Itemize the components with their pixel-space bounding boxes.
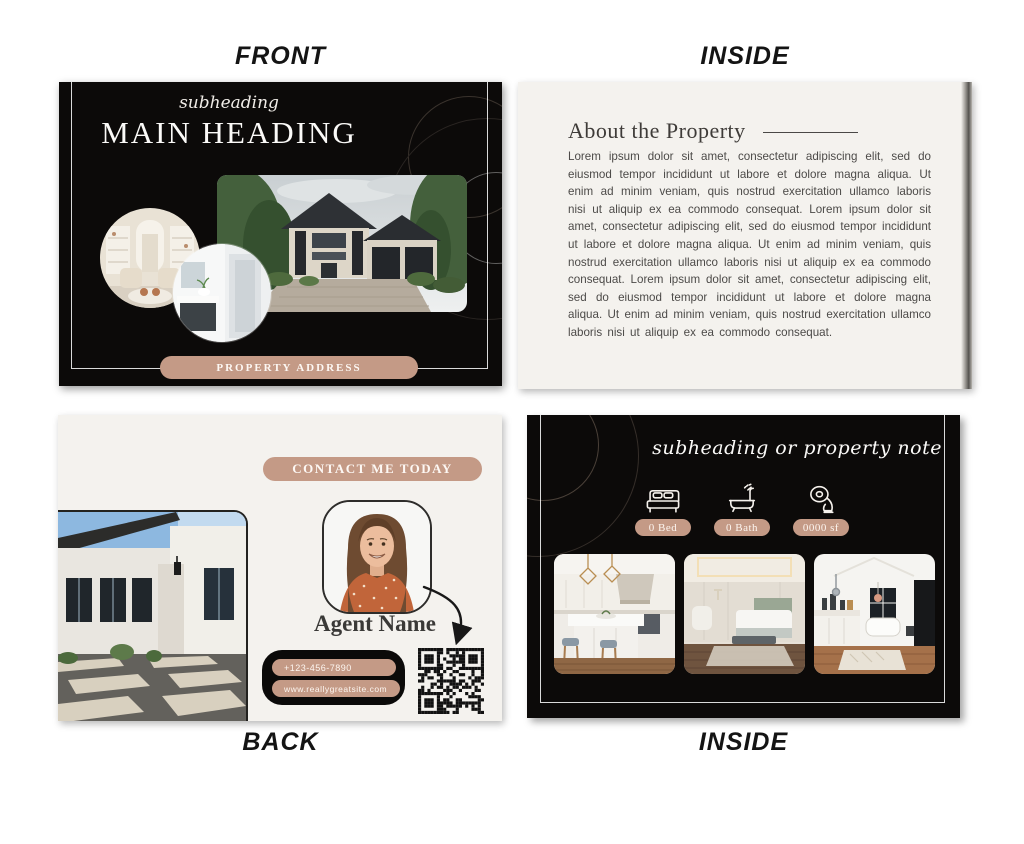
bed-count-pill: 0 Bed	[635, 519, 691, 536]
sqft-pill: 0000 sf	[793, 519, 849, 536]
inside-top-label: INSIDE	[518, 42, 972, 71]
phone-pill: +123-456-7890	[272, 659, 396, 676]
tape-measure-icon	[805, 485, 837, 515]
stat-bed: 0 Bed	[627, 485, 699, 536]
decorative-circle	[527, 415, 639, 557]
property-address-pill: PROPERTY ADDRESS	[160, 356, 418, 379]
front-card: subheading MAIN HEADING	[59, 82, 502, 386]
flyer-mockup-page: FRONT INSIDE BACK INSIDE subheading MAIN…	[0, 0, 1024, 844]
inside-gallery-card: subheading or property note 0 Bed	[527, 415, 960, 718]
front-main-heading: MAIN HEADING	[69, 115, 389, 151]
property-note-subheading: subheading or property note	[652, 437, 942, 459]
qr-code	[418, 648, 484, 714]
inside-bottom-label: INSIDE	[527, 728, 960, 757]
curved-arrow-icon	[421, 581, 473, 645]
property-stats-row: 0 Bed 0 Bath	[627, 485, 857, 536]
about-heading: About the Property	[568, 118, 746, 144]
back-card: CONTACT ME TODAY	[58, 415, 502, 721]
bath-icon	[726, 485, 758, 515]
stat-bath: 0 Bath	[706, 485, 778, 536]
contact-me-pill: CONTACT ME TODAY	[263, 457, 482, 481]
heading-rule	[763, 132, 858, 133]
front-label: FRONT	[59, 42, 502, 71]
interior-photo-row	[554, 554, 935, 674]
kitchen-photo	[554, 554, 675, 674]
front-subheading: subheading	[69, 93, 389, 113]
page-edge-shadow	[961, 82, 972, 389]
bed-icon	[644, 485, 682, 515]
bath-count-pill: 0 Bath	[714, 519, 770, 536]
website-pill: www.reallygreatsite.com	[272, 680, 400, 697]
bathroom-circle-photo	[173, 244, 271, 342]
bedroom-photo	[684, 554, 805, 674]
bathroom-interior-photo	[814, 554, 935, 674]
about-body-text: Lorem ipsum dolor sit amet, consectetur …	[568, 148, 931, 342]
back-label: BACK	[59, 728, 502, 757]
agent-headshot-photo	[322, 500, 432, 614]
inside-about-card: About the Property Lorem ipsum dolor sit…	[518, 82, 972, 389]
house-walkway-photo	[58, 510, 248, 721]
stat-sqft: 0000 sf	[785, 485, 857, 536]
contact-info-block: +123-456-7890 www.reallygreatsite.com	[262, 650, 405, 705]
decorative-circle	[527, 415, 599, 501]
